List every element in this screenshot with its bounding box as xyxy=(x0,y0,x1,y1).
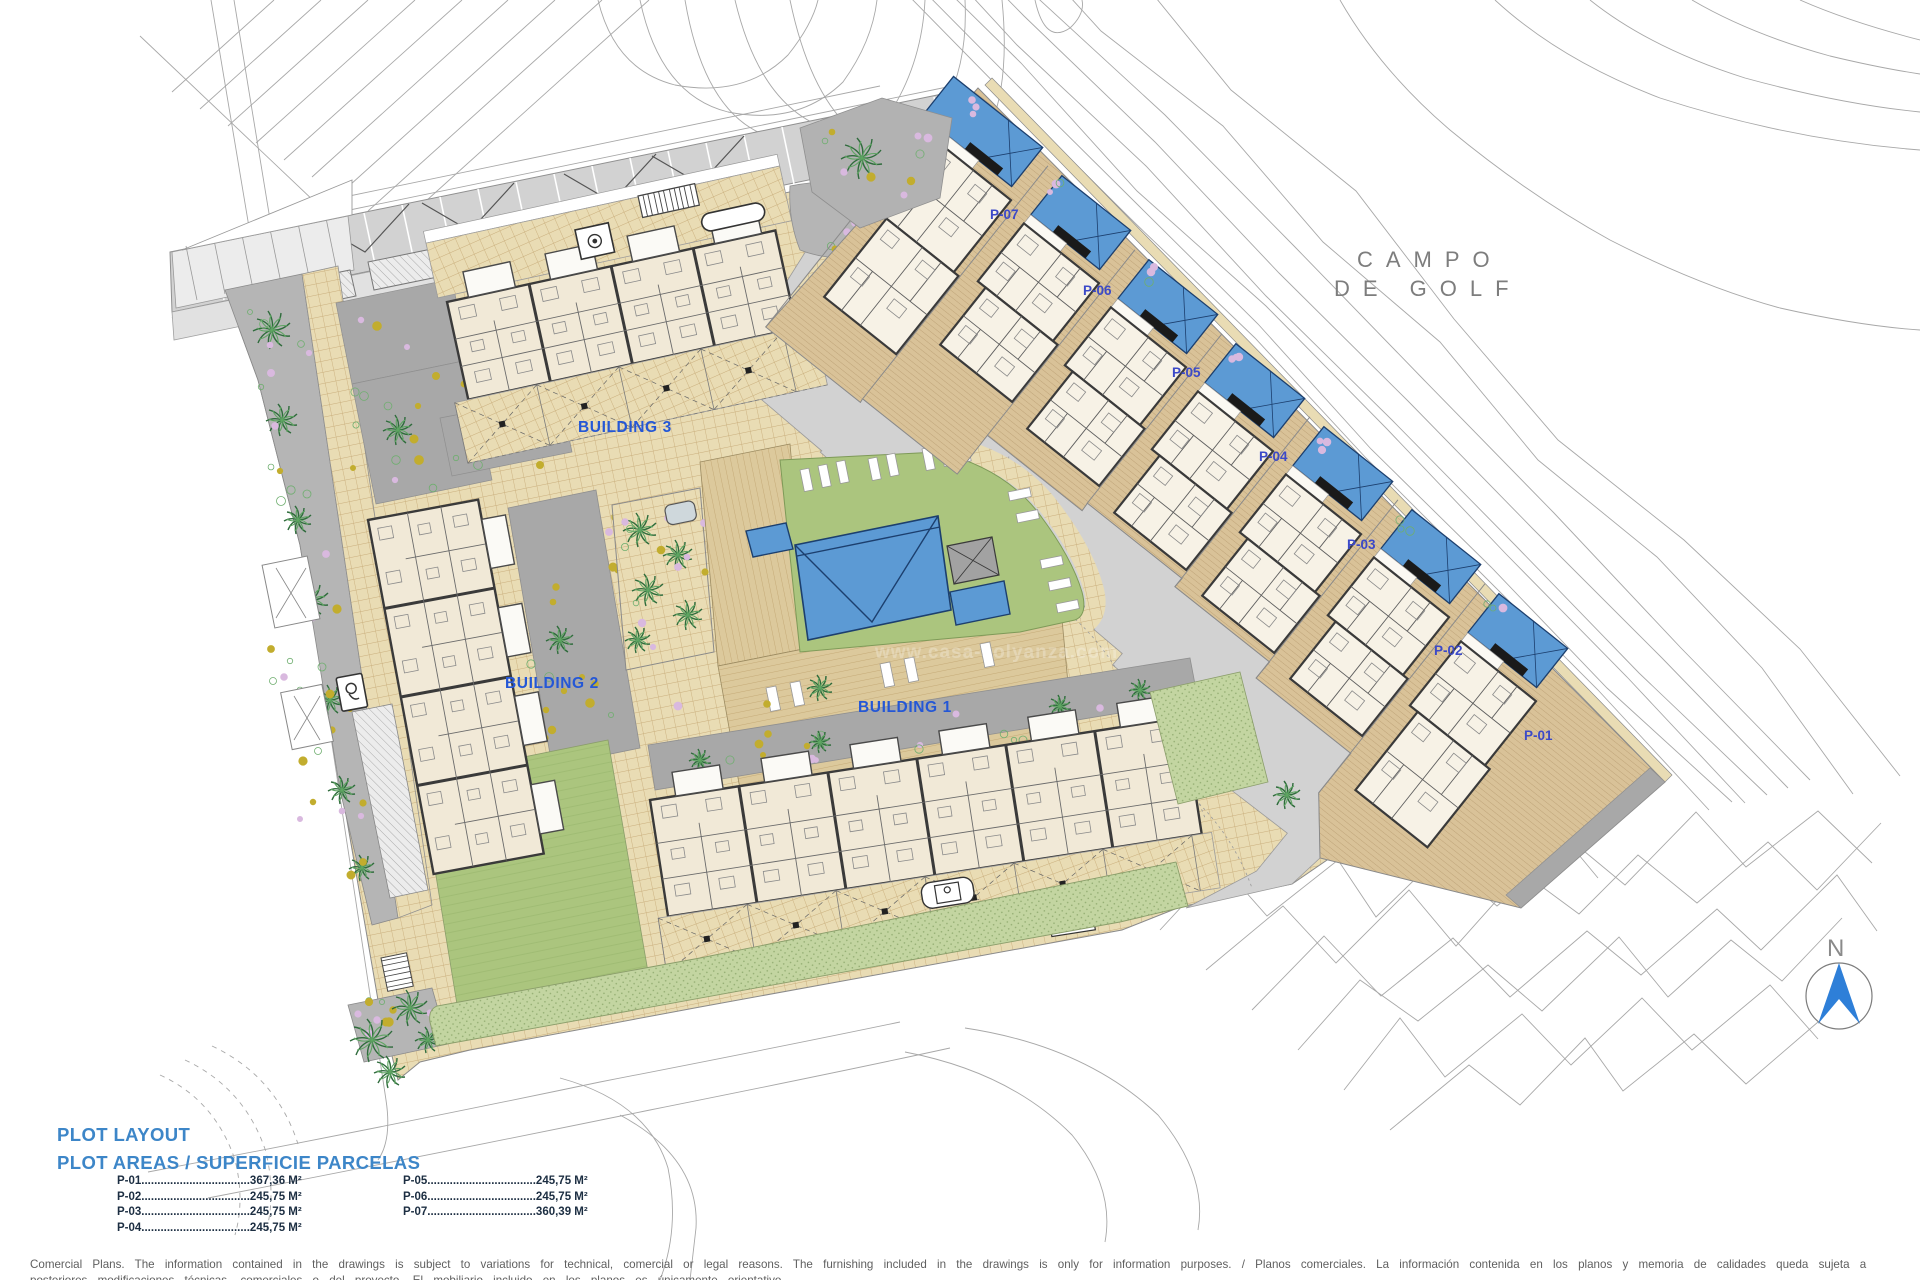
svg-text:P-03..........................: P-03..................................24… xyxy=(117,1206,302,1218)
svg-text:P-05: P-05 xyxy=(1172,365,1201,380)
svg-text:P-07..........................: P-07..................................36… xyxy=(403,1206,588,1218)
svg-text:PLOT LAYOUT: PLOT LAYOUT xyxy=(57,1124,191,1145)
svg-text:P-06..........................: P-06..................................24… xyxy=(403,1191,588,1203)
svg-text:BUILDING 1: BUILDING 1 xyxy=(858,699,952,716)
svg-text:www.casa-solyanza.com: www.casa-solyanza.com xyxy=(874,642,1118,663)
svg-text:PLOT AREAS / SUPERFICIE PARCEL: PLOT AREAS / SUPERFICIE PARCELAS xyxy=(57,1152,420,1173)
svg-text:DE GOLF: DE GOLF xyxy=(1334,276,1522,301)
svg-text:P-04..........................: P-04..................................24… xyxy=(117,1222,302,1234)
svg-text:P-04: P-04 xyxy=(1259,449,1288,464)
svg-text:P-03: P-03 xyxy=(1347,537,1376,552)
svg-text:P-05..........................: P-05..................................24… xyxy=(403,1175,588,1187)
svg-text:posteriores modificaciones téc: posteriores modificaciones técnicas, com… xyxy=(30,1274,785,1280)
svg-text:P-01: P-01 xyxy=(1524,728,1553,743)
svg-text:P-02: P-02 xyxy=(1434,643,1463,658)
svg-text:CAMPO: CAMPO xyxy=(1357,247,1503,272)
svg-text:N: N xyxy=(1827,935,1844,962)
svg-text:BUILDING 2: BUILDING 2 xyxy=(505,675,599,692)
svg-text:P-06: P-06 xyxy=(1083,283,1112,298)
svg-text:P-02..........................: P-02..................................24… xyxy=(117,1191,302,1203)
svg-text:P-07: P-07 xyxy=(990,207,1019,222)
svg-text:P-01..........................: P-01..................................36… xyxy=(117,1175,302,1187)
svg-text:BUILDING 3: BUILDING 3 xyxy=(578,419,672,436)
svg-text:Comercial Plans. The informati: Comercial Plans. The information contain… xyxy=(30,1258,1867,1271)
